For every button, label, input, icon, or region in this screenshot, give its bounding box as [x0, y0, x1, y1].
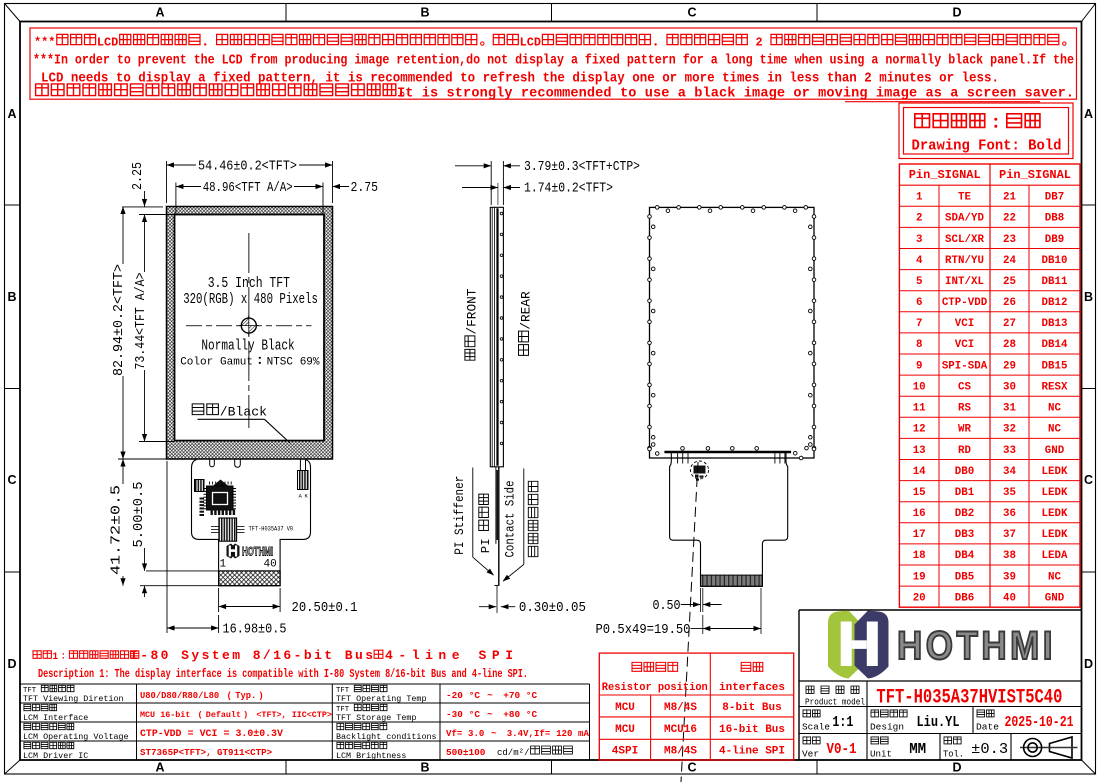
- svg-text:NTSC: NTSC: [267, 357, 294, 369]
- svg-text:20.50±0.1: 20.50±0.1: [292, 601, 358, 616]
- svg-text:): ): [243, 710, 248, 720]
- svg-text:Date: Date: [976, 722, 999, 733]
- svg-text:Color: Color: [180, 357, 213, 369]
- svg-text:<TFT>,: <TFT>,: [256, 710, 286, 720]
- svg-text:LCM Operating Voltage: LCM Operating Voltage: [23, 732, 129, 742]
- svg-text:M8/4S: M8/4S: [664, 702, 697, 714]
- svg-text:interfaces: interfaces: [719, 682, 785, 694]
- svg-text:Typ.: Typ.: [235, 691, 256, 701]
- svg-text:39: 39: [1003, 571, 1016, 583]
- svg-text:A: A: [155, 6, 164, 20]
- svg-text:CTP-VDD: CTP-VDD: [140, 728, 182, 739]
- svg-text:MCU: MCU: [140, 710, 155, 720]
- svg-text:GND: GND: [1045, 445, 1065, 457]
- svg-text:cd/m: cd/m: [497, 748, 519, 758]
- svg-text:120: 120: [556, 728, 572, 739]
- svg-text:±0.3: ±0.3: [971, 741, 1008, 758]
- svg-text:TFT Viewing Diretion: TFT Viewing Diretion: [23, 694, 124, 704]
- svg-text:9: 9: [916, 360, 922, 372]
- svg-text:C: C: [687, 6, 696, 20]
- svg-text:LCM Interface: LCM Interface: [23, 713, 88, 723]
- svg-text:1: 1: [916, 192, 923, 204]
- svg-text:A: A: [155, 761, 164, 775]
- svg-text:Vf=: Vf=: [446, 728, 463, 739]
- svg-text:RTN/YU: RTN/YU: [945, 255, 984, 267]
- svg-text:(: (: [198, 710, 203, 720]
- svg-text:320(RGB) x 480 Pixels: 320(RGB) x 480 Pixels: [183, 291, 318, 308]
- svg-text:B: B: [7, 290, 16, 304]
- svg-text:B: B: [1084, 290, 1093, 304]
- svg-text:35: 35: [1003, 487, 1016, 499]
- svg-text:29: 29: [1003, 360, 1016, 372]
- svg-text:°C: °C: [526, 690, 538, 701]
- svg-text:30: 30: [1003, 382, 1016, 394]
- svg-text:+70: +70: [503, 690, 520, 701]
- svg-text:3.0: 3.0: [468, 728, 484, 739]
- svg-text:3.4V,If=: 3.4V,If=: [507, 728, 551, 739]
- svg-text:5.00±0.5: 5.00±0.5: [132, 482, 147, 548]
- svg-text:DB9: DB9: [1045, 234, 1064, 246]
- svg-text:73.44<TFT A/A>: 73.44<TFT A/A>: [134, 273, 149, 370]
- svg-text:LCM Driver IC: LCM Driver IC: [23, 751, 88, 761]
- svg-text:LCM Brightness: LCM Brightness: [336, 751, 406, 761]
- svg-text:1.74±0.2<TFT>: 1.74±0.2<TFT>: [524, 182, 613, 197]
- svg-text:38: 38: [1003, 550, 1016, 562]
- svg-text:12: 12: [913, 424, 926, 436]
- svg-text:48.96<TFT A/A>: 48.96<TFT A/A>: [203, 181, 293, 196]
- svg-text:mA: mA: [578, 728, 589, 739]
- svg-text:16.98±0.5: 16.98±0.5: [223, 623, 287, 638]
- svg-text:6: 6: [916, 297, 922, 309]
- svg-text:HOTHMI: HOTHMI: [242, 547, 273, 559]
- svg-text:RS: RS: [958, 403, 971, 415]
- svg-text:P0.5x49=19.50: P0.5x49=19.50: [596, 623, 691, 638]
- svg-text:D: D: [952, 6, 961, 20]
- svg-text:13: 13: [913, 445, 926, 457]
- svg-text:0.30±0.05: 0.30±0.05: [519, 601, 586, 616]
- svg-text:33: 33: [1003, 445, 1016, 457]
- svg-text:A: A: [7, 107, 16, 121]
- svg-text:1: 1: [220, 559, 227, 571]
- svg-text:8-bit Bus: 8-bit Bus: [722, 702, 781, 714]
- svg-text:DB4: DB4: [955, 550, 975, 562]
- svg-text:CTP-VDD: CTP-VDD: [942, 297, 988, 309]
- svg-text:B: B: [420, 6, 429, 20]
- svg-text:0.50: 0.50: [653, 599, 681, 614]
- svg-text:41.72±0.5: 41.72±0.5: [110, 485, 125, 575]
- svg-text:/Black: /Black: [220, 405, 267, 420]
- svg-text:DB6: DB6: [955, 592, 974, 604]
- svg-text:VCI: VCI: [955, 339, 974, 351]
- svg-text:2: 2: [756, 36, 763, 50]
- svg-text:LEDK: LEDK: [1042, 487, 1068, 499]
- svg-text:GND: GND: [1045, 592, 1065, 604]
- svg-text:TFT Storage Temp: TFT Storage Temp: [336, 713, 416, 723]
- svg-text:=: =: [188, 728, 194, 739]
- svg-text:C: C: [687, 761, 696, 775]
- svg-text:3.5 Inch TFT: 3.5 Inch TFT: [208, 275, 290, 292]
- svg-text:LEDK: LEDK: [1042, 466, 1068, 478]
- svg-text:CS: CS: [958, 382, 971, 394]
- svg-text:TE: TE: [958, 192, 971, 204]
- svg-text:2: 2: [916, 213, 922, 225]
- svg-text:11: 11: [913, 403, 926, 415]
- svg-text:28: 28: [1003, 339, 1016, 351]
- svg-text:22: 22: [1003, 213, 1016, 225]
- svg-text:18: 18: [913, 550, 926, 562]
- svg-text:/FRONT: /FRONT: [465, 288, 480, 334]
- svg-text:DB13: DB13: [1042, 318, 1068, 330]
- svg-text:LCD: LCD: [97, 36, 118, 50]
- svg-text:U80/D80/R80/L80: U80/D80/R80/L80: [140, 691, 219, 701]
- svg-text:40: 40: [264, 559, 277, 571]
- svg-text:500±100: 500±100: [446, 747, 486, 758]
- svg-text:36: 36: [1003, 508, 1016, 520]
- svg-text:Pin_SIGNAL: Pin_SIGNAL: [999, 168, 1071, 182]
- svg-text:17: 17: [913, 529, 926, 541]
- svg-text:IIC<CTP>: IIC<CTP>: [292, 710, 332, 720]
- svg-text:2.25: 2.25: [131, 162, 146, 190]
- svg-text:-20: -20: [446, 690, 463, 701]
- svg-text:°C: °C: [469, 690, 481, 701]
- svg-text:5: 5: [916, 276, 922, 288]
- svg-text:TFT-H035A37 V0: TFT-H035A37 V0: [249, 526, 294, 534]
- svg-text:16-bit Bus: 16-bit Bus: [719, 724, 785, 736]
- svg-text:D: D: [7, 657, 16, 671]
- svg-text:M8/4S: M8/4S: [664, 746, 697, 758]
- svg-text:Unit: Unit: [870, 749, 892, 760]
- svg-text:LCD: LCD: [520, 36, 541, 50]
- svg-text:2.75: 2.75: [351, 181, 379, 196]
- svg-text:23: 23: [1003, 234, 1016, 246]
- svg-text:3.0±0.3V: 3.0±0.3V: [236, 728, 283, 739]
- svg-text:GT911<CTP>: GT911<CTP>: [217, 747, 273, 758]
- svg-text:Resistor position: Resistor position: [602, 682, 708, 694]
- svg-text:32: 32: [1003, 424, 1016, 436]
- svg-text:DB12: DB12: [1042, 297, 1068, 309]
- svg-text:DB14: DB14: [1042, 339, 1068, 351]
- svg-text:SPI-SDA: SPI-SDA: [942, 360, 988, 372]
- svg-text:24: 24: [1003, 255, 1016, 267]
- svg-text:+80: +80: [503, 709, 520, 720]
- svg-text:Default: Default: [206, 710, 241, 720]
- svg-text:C: C: [1084, 473, 1093, 487]
- svg-text:MCU: MCU: [615, 724, 635, 736]
- svg-text:DB2: DB2: [955, 508, 974, 520]
- svg-text:34: 34: [1003, 466, 1016, 478]
- svg-text:LEDK: LEDK: [1042, 508, 1068, 520]
- svg-text:-30: -30: [446, 709, 463, 720]
- svg-text:B: B: [420, 761, 429, 775]
- svg-text:4SPI: 4SPI: [612, 746, 638, 758]
- svg-text:10: 10: [913, 382, 926, 394]
- svg-text:°C: °C: [526, 709, 538, 720]
- svg-text:2025-10-21: 2025-10-21: [1005, 714, 1074, 731]
- svg-text:3: 3: [916, 234, 922, 246]
- svg-text:~: ~: [491, 728, 497, 739]
- svg-text:DB10: DB10: [1042, 255, 1068, 267]
- svg-text:PI Stiffener: PI Stiffener: [452, 476, 467, 555]
- svg-text:Pin_SIGNAL: Pin_SIGNAL: [909, 168, 981, 182]
- svg-text:): ): [258, 691, 263, 701]
- svg-text:21: 21: [1003, 192, 1016, 204]
- svg-text:WR: WR: [958, 424, 971, 436]
- svg-text:DB11: DB11: [1042, 276, 1068, 288]
- svg-text:MCU: MCU: [615, 702, 635, 714]
- svg-text:MCU16: MCU16: [664, 724, 697, 736]
- svg-text:Drawing Font: Bold: Drawing Font: Bold: [912, 139, 1062, 155]
- svg-text:***: ***: [34, 36, 55, 50]
- svg-text:Contact Side: Contact Side: [503, 481, 518, 558]
- svg-text:19: 19: [913, 571, 926, 583]
- svg-text:Tol.: Tol.: [943, 749, 964, 760]
- svg-text:TFT Operating Temp: TFT Operating Temp: [336, 694, 426, 704]
- svg-text:DB8: DB8: [1045, 213, 1064, 225]
- svg-text:14: 14: [913, 466, 926, 478]
- svg-text:V0-1: V0-1: [827, 741, 857, 758]
- svg-text:37: 37: [1003, 529, 1016, 541]
- svg-text:31: 31: [1003, 403, 1016, 415]
- svg-text:A: A: [1084, 107, 1093, 121]
- svg-text:D: D: [952, 761, 961, 775]
- svg-text:Ver: Ver: [802, 749, 819, 760]
- svg-text:ST7365P<TFT>,: ST7365P<TFT>,: [140, 747, 212, 758]
- svg-text:SDA/YD: SDA/YD: [945, 213, 984, 225]
- svg-text:DB15: DB15: [1042, 360, 1068, 372]
- svg-text:16: 16: [913, 508, 926, 520]
- svg-text:DB7: DB7: [1045, 192, 1064, 204]
- svg-text:It is strongly recommended to: It is strongly recommended to use a blac…: [397, 87, 1074, 102]
- svg-text:3.79±0.3<TFT+CTP>: 3.79±0.3<TFT+CTP>: [524, 160, 640, 175]
- svg-text:DB3: DB3: [955, 529, 974, 541]
- svg-text:Backlight conditions: Backlight conditions: [336, 732, 437, 742]
- svg-text:HOTHMI: HOTHMI: [897, 624, 1056, 668]
- svg-text:SCL/XR: SCL/XR: [945, 234, 984, 246]
- svg-text:Product model: Product model: [805, 697, 865, 708]
- svg-text:1: 1: [52, 651, 58, 662]
- svg-text:=: =: [224, 728, 230, 739]
- svg-text:Description 1: The display int: Description 1: The display interface is …: [38, 667, 528, 681]
- svg-text:RESX: RESX: [1042, 382, 1068, 394]
- svg-text:15: 15: [913, 487, 926, 499]
- svg-text:MM: MM: [909, 741, 926, 758]
- svg-text:40: 40: [1003, 592, 1016, 604]
- svg-text:1:1: 1:1: [832, 714, 853, 731]
- svg-text:Normally Black: Normally Black: [201, 338, 294, 355]
- svg-text:8: 8: [916, 339, 922, 351]
- svg-text:4: 4: [916, 255, 923, 267]
- svg-text:Design: Design: [870, 722, 904, 733]
- svg-text:VCI: VCI: [955, 318, 974, 330]
- svg-text:26: 26: [1003, 297, 1016, 309]
- svg-text:27: 27: [1003, 318, 1016, 330]
- svg-text:82.94±0.2<TFT>: 82.94±0.2<TFT>: [112, 264, 127, 376]
- svg-text:INT/XL: INT/XL: [945, 276, 984, 288]
- svg-text:VCI: VCI: [200, 728, 218, 739]
- svg-text:RD: RD: [958, 445, 971, 457]
- svg-text:25: 25: [1003, 276, 1016, 288]
- svg-text:~: ~: [487, 690, 493, 701]
- svg-text:***In order to prevent the LCD: ***In order to prevent the LCD from prod…: [33, 54, 1074, 69]
- svg-text:~: ~: [487, 709, 493, 720]
- svg-text:/: /: [524, 748, 529, 758]
- svg-text:Liu.YL: Liu.YL: [917, 714, 960, 731]
- svg-text:Gamut: Gamut: [220, 357, 253, 369]
- svg-text:NC: NC: [1048, 424, 1061, 436]
- svg-text:4-line SPI: 4-line SPI: [719, 746, 785, 758]
- svg-text:/REAR: /REAR: [518, 291, 533, 330]
- svg-text:°C: °C: [469, 709, 481, 720]
- svg-text:DB5: DB5: [955, 571, 974, 583]
- svg-text:LEDA: LEDA: [1042, 550, 1068, 562]
- svg-text:(: (: [227, 691, 232, 701]
- svg-text:16-bit: 16-bit: [160, 710, 190, 720]
- svg-text:20: 20: [913, 592, 926, 604]
- svg-text:DB0: DB0: [955, 466, 974, 478]
- svg-text:Scale: Scale: [802, 722, 830, 733]
- svg-text:D: D: [1084, 657, 1093, 671]
- svg-text:7: 7: [916, 318, 922, 330]
- svg-text:69%: 69%: [300, 357, 320, 369]
- svg-text:PI: PI: [479, 538, 493, 553]
- svg-text:LEDK: LEDK: [1042, 529, 1068, 541]
- svg-text:NC: NC: [1048, 571, 1061, 583]
- svg-text:DB1: DB1: [955, 487, 975, 499]
- svg-text:54.46±0.2<TFT>: 54.46±0.2<TFT>: [198, 160, 297, 175]
- svg-text:C: C: [7, 473, 16, 487]
- svg-text:NC: NC: [1048, 403, 1061, 415]
